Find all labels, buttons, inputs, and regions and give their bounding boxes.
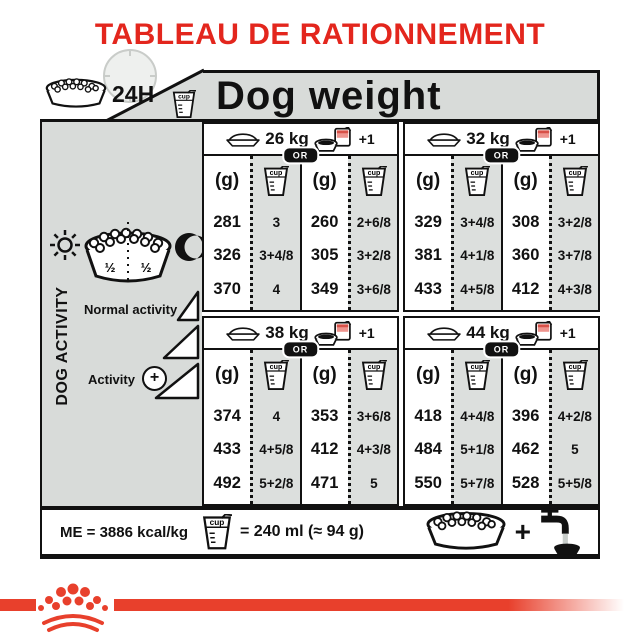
bowl-and-pouch-icon: [515, 127, 555, 152]
measuring-cup-icon: [263, 360, 289, 391]
or-badge: OR: [485, 342, 519, 356]
gram-unit-label: (g): [312, 364, 336, 386]
weight-label: 38 kg: [265, 323, 308, 343]
table-header: 24H Dog weight: [40, 70, 600, 122]
cup-value: 5: [370, 476, 378, 491]
gram-unit-label: (g): [513, 364, 537, 386]
cup-value: 4+1/8: [460, 248, 494, 263]
gram-value: 484: [414, 440, 442, 459]
energy-label: ME = 3886 kcal/kg: [60, 524, 188, 541]
brand-band-left: [0, 599, 36, 611]
measuring-cup-icon: [202, 514, 232, 551]
gram-value: 412: [512, 280, 540, 299]
gram-value: 462: [512, 440, 540, 459]
section-header: 26 kg +1 OR: [204, 124, 397, 156]
cup-value: 4+3/8: [357, 442, 391, 457]
bowl-icon: [427, 132, 461, 147]
cup-value: 5+1/8: [460, 442, 494, 457]
rationing-table-page: TABLEAU DE RATIONNEMENT 24H Dog weight: [0, 0, 640, 640]
dog-activity-title: DOG ACTIVITY: [54, 281, 72, 411]
section-header: 38 kg +1 OR: [204, 318, 397, 350]
weight-label: 26 kg: [265, 129, 308, 149]
activity-label: Activity: [88, 372, 135, 387]
cup-value: 3: [273, 215, 281, 230]
gram-value: 433: [414, 280, 442, 299]
cup-equivalence-label: = 240 ml (≈ 94 g): [240, 523, 364, 541]
plus-one-label: +1: [560, 325, 576, 341]
gram-value: 360: [512, 246, 540, 265]
gram-value: 305: [311, 246, 339, 265]
kibble-bowl-icon: [422, 511, 510, 554]
dog-weight-title: Dog weight: [216, 70, 442, 122]
cup-value: 5: [571, 442, 579, 457]
royal-canin-crown-logo: [34, 582, 114, 634]
measuring-cup-icon: [464, 166, 490, 197]
gram-unit-label: (g): [416, 170, 440, 192]
or-badge: OR: [485, 148, 519, 162]
weight-section-38kg: 38 kg +1 OR (g) 374 433 49: [202, 316, 399, 506]
half-left-label: ½: [105, 260, 116, 275]
bowl-icon: [226, 326, 260, 341]
measuring-cup-icon: [361, 166, 387, 197]
plus-sign: +: [515, 516, 531, 548]
gram-value: 349: [311, 280, 339, 299]
bowl-and-pouch-icon: [314, 127, 354, 152]
cup-value: 5+7/8: [460, 476, 494, 491]
measuring-cup-icon: [562, 360, 588, 391]
kibble-bowl-icon: [44, 78, 108, 111]
gram-value: 492: [213, 474, 241, 493]
section-header: 32 kg +1 OR: [405, 124, 598, 156]
cup-value: 3+2/8: [357, 248, 391, 263]
plus-one-label: +1: [560, 131, 576, 147]
weight-section-26kg: 26 kg +1 OR (g) 281 326 37: [202, 122, 399, 312]
cup-value: 4+4/8: [460, 409, 494, 424]
gram-unit-label: (g): [513, 170, 537, 192]
moon-icon: [175, 232, 203, 262]
24h-label: 24H: [112, 81, 154, 108]
brand-band-right: [114, 599, 640, 611]
gram-unit-label: (g): [416, 364, 440, 386]
gram-value: 329: [414, 213, 442, 232]
measuring-cup-icon: [361, 360, 387, 391]
cup-value: 2+6/8: [357, 215, 391, 230]
sun-icon: [48, 228, 82, 262]
cup-value: 3+6/8: [357, 282, 391, 297]
cup-value: 3+6/8: [357, 409, 391, 424]
gram-value: 281: [213, 213, 241, 232]
or-badge: OR: [284, 342, 318, 356]
plus-one-label: +1: [359, 131, 375, 147]
page-title: TABLEAU DE RATIONNEMENT: [0, 18, 640, 52]
water-faucet-icon: [536, 507, 586, 557]
gram-value: 353: [311, 407, 339, 426]
table-footer: ME = 3886 kcal/kg = 240 ml (≈ 94 g) +: [40, 506, 600, 559]
weight-label: 44 kg: [466, 323, 509, 343]
weight-label: 32 kg: [466, 129, 509, 149]
measuring-cup-icon: [172, 90, 196, 119]
gram-value: 260: [311, 213, 339, 232]
rationing-table: 24H Dog weight: [40, 70, 600, 559]
gram-value: 370: [213, 280, 241, 299]
bowl-icon: [427, 326, 461, 341]
measuring-cup-icon: [263, 166, 289, 197]
cup-value: 3+2/8: [558, 215, 592, 230]
cup-value: 3+4/8: [259, 248, 293, 263]
gram-unit-label: (g): [215, 364, 239, 386]
gram-value: 308: [512, 213, 540, 232]
bowl-and-pouch-icon: [515, 321, 555, 346]
cup-value: 4+5/8: [259, 442, 293, 457]
measuring-cup-icon: [464, 360, 490, 391]
weight-sections-grid: 26 kg +1 OR (g) 281 326 37: [202, 122, 600, 506]
gram-value: 433: [213, 440, 241, 459]
cup-value: 4+5/8: [460, 282, 494, 297]
gram-value: 412: [311, 440, 339, 459]
cup-value: 5+2/8: [259, 476, 293, 491]
cup-value: 4: [273, 282, 281, 297]
cup-value: 3+7/8: [558, 248, 592, 263]
half-right-label: ½: [141, 260, 152, 275]
gram-value: 471: [311, 474, 339, 493]
cup-value: 5+5/8: [558, 476, 592, 491]
gram-value: 550: [414, 474, 442, 493]
cup-value: 4: [273, 409, 281, 424]
half-half-bowl-icon: ½ ½: [82, 220, 174, 292]
gram-value: 396: [512, 407, 540, 426]
cup-value: 4+3/8: [558, 282, 592, 297]
cup-value: 4+2/8: [558, 409, 592, 424]
gram-unit-label: (g): [312, 170, 336, 192]
bowl-and-pouch-icon: [314, 321, 354, 346]
plus-circle-icon: +: [142, 366, 167, 391]
gram-value: 528: [512, 474, 540, 493]
gram-value: 326: [213, 246, 241, 265]
measuring-cup-icon: [562, 166, 588, 197]
bowl-icon: [226, 132, 260, 147]
gram-value: 374: [213, 407, 241, 426]
plus-one-label: +1: [359, 325, 375, 341]
weight-section-44kg: 44 kg +1 OR (g) 418 484 55: [403, 316, 600, 506]
gram-value: 418: [414, 407, 442, 426]
gram-value: 381: [414, 246, 442, 265]
or-badge: OR: [284, 148, 318, 162]
section-header: 44 kg +1 OR: [405, 318, 598, 350]
gram-unit-label: (g): [215, 170, 239, 192]
weight-section-32kg: 32 kg +1 OR (g) 329 381 43: [403, 122, 600, 312]
cup-value: 3+4/8: [460, 215, 494, 230]
dog-activity-sidebar: ½ ½ DOG ACTIVITY Normal activity Activit…: [40, 122, 202, 506]
